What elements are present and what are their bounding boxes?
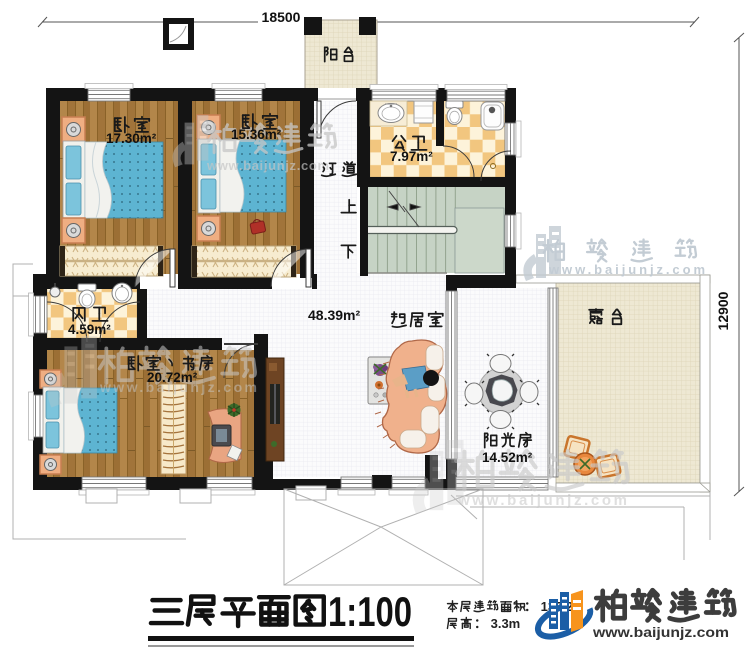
- svg-text:12900: 12900: [715, 291, 731, 330]
- svg-text:48.39m²: 48.39m²: [308, 307, 360, 323]
- svg-text:7.97m²: 7.97m²: [390, 149, 433, 164]
- svg-text:www.baijunjz.com: www.baijunjz.com: [206, 158, 329, 173]
- svg-text:17.30m²: 17.30m²: [106, 131, 157, 146]
- svg-text:15.36m²: 15.36m²: [231, 127, 282, 142]
- svg-text:： 3.3m: ： 3.3m: [474, 616, 520, 631]
- svg-text:4.59m²: 4.59m²: [68, 322, 111, 337]
- svg-text:www.baijunjz.com: www.baijunjz.com: [592, 624, 729, 640]
- svg-text:1:100: 1:100: [328, 588, 412, 635]
- svg-text:20.72m²: 20.72m²: [147, 370, 198, 385]
- svg-text:14.52m²: 14.52m²: [482, 450, 533, 465]
- svg-text:www.baijunjz.com: www.baijunjz.com: [548, 262, 707, 277]
- svg-text:18500: 18500: [262, 9, 301, 25]
